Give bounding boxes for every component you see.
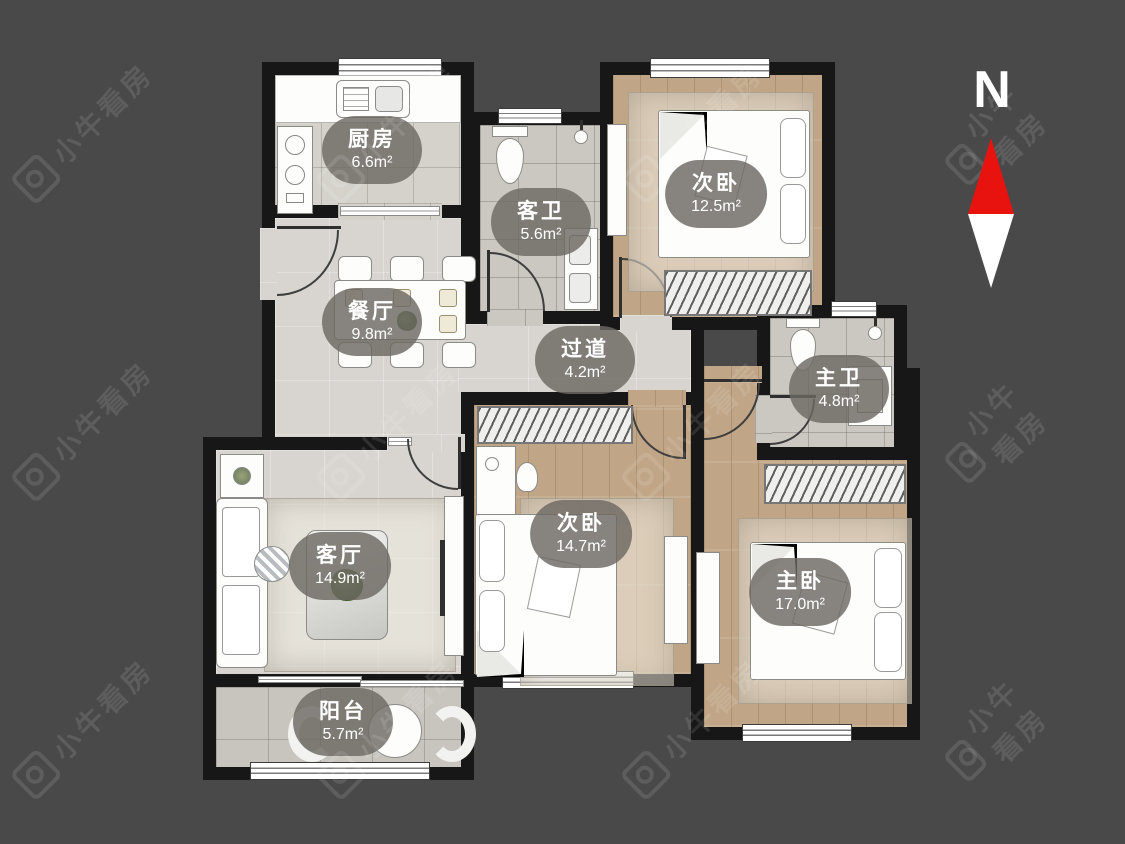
bedroom-mid-door-leaf — [683, 405, 686, 459]
balcony-chair — [428, 706, 476, 762]
watermark-text: 小牛看房 — [43, 54, 162, 173]
kitchen-stove — [277, 126, 313, 214]
window-guest-bath — [498, 108, 562, 124]
watermark: 小牛看房 — [9, 54, 162, 207]
room-area: 4.8m² — [815, 392, 863, 413]
label-dining: 餐厅 9.8m² — [322, 288, 422, 356]
guest-bath-shower-head — [574, 130, 588, 144]
dining-chair — [338, 256, 372, 282]
room-area: 6.6m² — [348, 153, 396, 174]
opening-guest-bath-door — [487, 309, 543, 326]
window-master-bath — [831, 301, 877, 317]
living-tv — [440, 540, 445, 616]
label-bedroom-mid: 次卧 14.7m² — [530, 500, 632, 568]
room-area: 14.7m² — [556, 537, 606, 558]
sofa-cushion — [222, 585, 260, 655]
dining-chair — [442, 342, 476, 368]
room-name: 客厅 — [315, 542, 365, 569]
room-area: 14.9m² — [315, 569, 365, 590]
stove-burner — [285, 135, 305, 155]
room-name: 客卫 — [517, 198, 565, 225]
room-name: 厨房 — [348, 126, 396, 153]
compass-north-label: N — [964, 60, 1020, 120]
bedroom-top-cabinet — [607, 124, 627, 236]
label-master-bedroom: 主卧 17.0m² — [749, 558, 851, 626]
watermark: 小牛看房 — [928, 654, 1073, 799]
sliding-door-balcony-right — [360, 680, 464, 687]
bedroom-mid-dresser — [664, 536, 688, 644]
label-living: 客厅 14.9m² — [289, 532, 391, 600]
bedroom-mid-pillow — [479, 520, 505, 582]
label-balcony: 阳台 5.7m² — [293, 688, 393, 756]
room-name: 主卫 — [815, 365, 863, 392]
window-master-bedroom — [742, 724, 852, 742]
watermark: 小牛看房 — [9, 352, 162, 505]
room-area: 5.6m² — [517, 225, 565, 246]
living-side-table — [220, 454, 264, 498]
bedroom-top-wardrobe — [664, 270, 812, 316]
master-dresser — [696, 552, 720, 664]
kitchen-sink — [336, 80, 410, 118]
watermark-logo-icon — [619, 748, 673, 802]
room-name: 阳台 — [319, 698, 367, 725]
watermark-logo-icon — [942, 737, 989, 784]
opening-entry-door — [260, 228, 277, 300]
watermark: 小牛看房 — [928, 356, 1073, 501]
label-guest-bath: 客卫 5.6m² — [491, 188, 591, 256]
watermark-text: 小牛看房 — [955, 356, 1073, 474]
watermark-text: 小牛看房 — [43, 650, 162, 769]
master-entry-door-leaf — [704, 379, 762, 382]
dining-chair — [390, 256, 424, 282]
master-bath-shower-pipe — [874, 316, 877, 326]
watermark-logo-icon — [942, 439, 989, 486]
room-area: 17.0m² — [775, 595, 825, 616]
bedroom-top-pillow — [780, 184, 806, 244]
room-name: 过道 — [561, 336, 609, 363]
dining-plate — [439, 289, 457, 307]
bedroom-top-pillow — [780, 118, 806, 178]
living-door-leaf — [458, 437, 461, 489]
window-balcony — [250, 762, 430, 780]
master-wardrobe — [764, 464, 906, 504]
room-name: 主卧 — [775, 568, 825, 595]
master-bath-toilet-tank — [786, 318, 820, 328]
bedroom-top-blanket-fold — [660, 112, 707, 159]
threshold-kitchen — [340, 206, 440, 216]
label-hallway: 过道 4.2m² — [535, 326, 635, 394]
dining-plate — [439, 315, 457, 333]
living-ottoman — [254, 546, 290, 582]
stove-burner — [285, 165, 305, 185]
desk-lamp — [485, 457, 499, 471]
dining-chair — [442, 256, 476, 282]
stove-knob — [286, 193, 304, 203]
floor-plan-canvas: 厨房 6.6m² 客卫 5.6m² 次卧 12.5m² 餐厅 9.8m² 过道 … — [0, 0, 1125, 844]
master-pillow — [874, 612, 902, 672]
guest-bath-shower-pipe — [580, 120, 583, 130]
compass-arrow-south — [968, 214, 1014, 288]
room-area: 5.7m² — [319, 725, 367, 746]
master-bath-shower-head — [868, 326, 882, 340]
label-bedroom-top: 次卧 12.5m² — [665, 160, 767, 228]
watermark-logo-icon — [9, 450, 63, 504]
kitchen-sink-basin — [375, 86, 403, 112]
master-pillow — [874, 548, 902, 608]
watermark-text: 小牛看房 — [955, 654, 1073, 772]
compass-arrow-north — [968, 138, 1014, 214]
room-name: 次卧 — [691, 170, 741, 197]
guest-bath-toilet-tank — [492, 126, 528, 137]
entry-door-leaf — [277, 226, 341, 229]
flower-decor — [233, 467, 251, 485]
bedroom-mid-pillow — [479, 590, 505, 652]
watermark: 小牛看房 — [9, 650, 162, 803]
bedroom-mid-chair — [516, 462, 538, 492]
bedroom-mid-desk — [476, 446, 516, 524]
label-master-bath: 主卫 4.8m² — [789, 355, 889, 423]
room-area: 4.2m² — [561, 363, 609, 384]
kitchen-sink-drainer — [343, 87, 369, 111]
watermark-logo-icon — [9, 748, 63, 802]
bedroom-mid-wardrobe — [477, 406, 633, 444]
guest-bath-sink — [569, 273, 591, 303]
sliding-door-balcony-left — [258, 676, 362, 683]
room-name: 餐厅 — [348, 298, 396, 325]
room-area: 12.5m² — [691, 197, 741, 218]
watermark-text: 小牛看房 — [43, 352, 162, 471]
room-area: 9.8m² — [348, 325, 396, 346]
living-sofa — [216, 498, 268, 668]
opening-bedroom-top-door — [620, 315, 672, 332]
window-bedroom-top — [650, 58, 770, 78]
living-tv-stand — [444, 496, 464, 656]
label-kitchen: 厨房 6.6m² — [322, 116, 422, 184]
watermark-logo-icon — [9, 152, 63, 206]
room-name: 次卧 — [556, 510, 606, 537]
